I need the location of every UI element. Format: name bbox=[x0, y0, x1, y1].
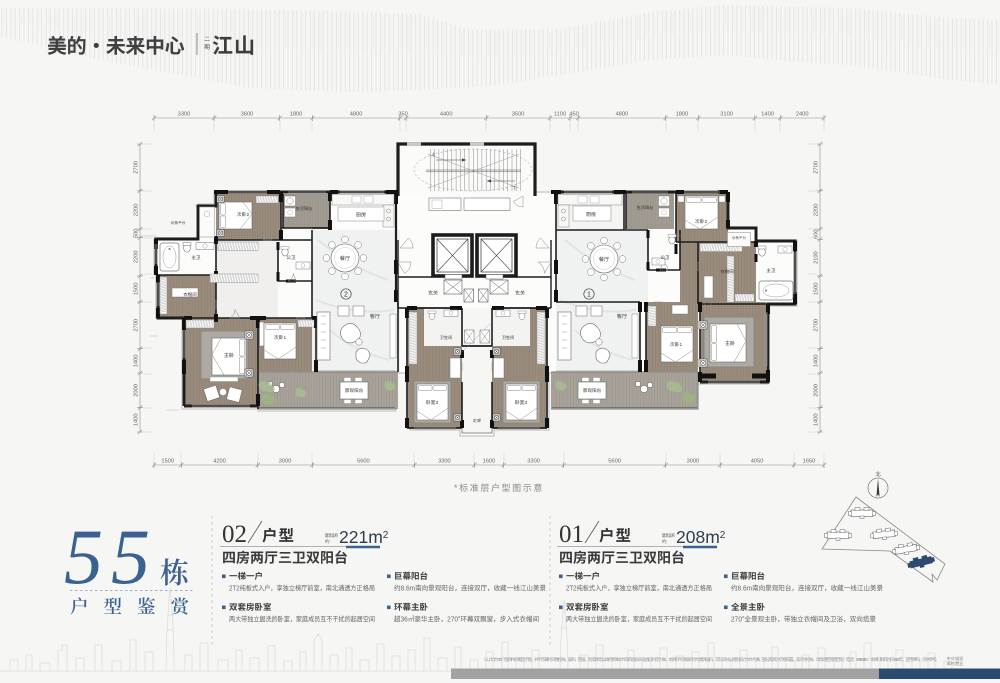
svg-text:1400: 1400 bbox=[814, 355, 820, 368]
svg-text:1800: 1800 bbox=[676, 112, 689, 118]
svg-text:美的置业: 美的置业 bbox=[947, 660, 964, 667]
svg-text:2700: 2700 bbox=[134, 319, 140, 332]
svg-text:卫生间: 卫生间 bbox=[502, 335, 515, 341]
svg-text:走廊: 走廊 bbox=[473, 418, 481, 424]
svg-text:客厅: 客厅 bbox=[370, 313, 380, 320]
svg-text:约: 约 bbox=[325, 539, 330, 545]
svg-text:户型鉴赏: 户型鉴赏 bbox=[70, 593, 204, 619]
svg-text:3100: 3100 bbox=[720, 112, 733, 118]
svg-text:4200: 4200 bbox=[213, 459, 226, 465]
svg-text:1400: 1400 bbox=[134, 413, 140, 426]
svg-text:3300: 3300 bbox=[438, 459, 451, 465]
svg-text:2T2纯板式入户，享独立梯厅前室，南北通透方正格局: 2T2纯板式入户，享独立梯厅前室，南北通透方正格局 bbox=[229, 584, 375, 594]
svg-text:双套房卧室: 双套房卧室 bbox=[229, 601, 272, 613]
svg-text:厨房: 厨房 bbox=[356, 212, 366, 219]
svg-text:次卧1: 次卧1 bbox=[274, 334, 287, 341]
svg-text:次卧1: 次卧1 bbox=[670, 341, 683, 348]
svg-text:3300: 3300 bbox=[527, 459, 540, 465]
svg-text:5600: 5600 bbox=[357, 459, 370, 465]
svg-text:1: 1 bbox=[587, 292, 591, 299]
svg-text:公卫: 公卫 bbox=[286, 255, 296, 261]
svg-text:1800: 1800 bbox=[290, 112, 303, 118]
svg-text:两大带独立盥洗的卧室，家庭成员互不干扰的起居空间: 两大带独立盥洗的卧室，家庭成员互不干扰的起居空间 bbox=[566, 615, 712, 625]
svg-text:2200: 2200 bbox=[814, 204, 820, 217]
svg-text:2200: 2200 bbox=[134, 250, 140, 263]
svg-text:景观阳台: 景观阳台 bbox=[345, 388, 364, 394]
svg-text:2400: 2400 bbox=[796, 112, 809, 118]
svg-text:卫生间: 卫生间 bbox=[440, 335, 453, 341]
svg-text:3300: 3300 bbox=[178, 112, 191, 118]
svg-text:1500: 1500 bbox=[161, 459, 174, 465]
svg-text:次卧2: 次卧2 bbox=[695, 218, 708, 225]
svg-text:环幕主卧: 环幕主卧 bbox=[394, 601, 429, 613]
svg-text:2700: 2700 bbox=[134, 161, 140, 174]
svg-text:450: 450 bbox=[569, 112, 579, 118]
svg-text:1400: 1400 bbox=[134, 355, 140, 368]
svg-text:1400: 1400 bbox=[761, 112, 774, 118]
svg-text:3000: 3000 bbox=[279, 459, 292, 465]
svg-text:2: 2 bbox=[344, 292, 348, 299]
svg-text:2000: 2000 bbox=[134, 384, 140, 397]
svg-text:4050: 4050 bbox=[751, 459, 764, 465]
svg-text:1500: 1500 bbox=[814, 283, 820, 296]
svg-text:景观阳台: 景观阳台 bbox=[583, 388, 602, 394]
svg-text:2100: 2100 bbox=[814, 251, 820, 264]
svg-text:1650: 1650 bbox=[803, 459, 816, 465]
svg-text:一梯一户: 一梯一户 bbox=[229, 570, 263, 582]
svg-text:02: 02 bbox=[222, 521, 247, 548]
svg-text:2200: 2200 bbox=[134, 204, 140, 217]
svg-text:玄关: 玄关 bbox=[428, 290, 438, 297]
svg-text:1500: 1500 bbox=[134, 283, 140, 296]
svg-text:江山: 江山 bbox=[212, 30, 256, 60]
svg-text:四房两厅三卫双阳台: 四房两厅三卫双阳台 bbox=[222, 548, 348, 568]
svg-text:主卫: 主卫 bbox=[191, 255, 201, 261]
svg-text:客厅: 客厅 bbox=[617, 313, 627, 320]
svg-text:公卫: 公卫 bbox=[660, 255, 670, 261]
svg-text:2700: 2700 bbox=[814, 161, 820, 174]
svg-text:玄关: 玄关 bbox=[515, 290, 525, 297]
svg-text:以上均为本户型结构的概念示意，并不作最终交楼标准，面积、管道: 以上均为本户型结构的概念示意，并不作最终交楼标准，面积、管道、别墙体等以政府批准… bbox=[484, 656, 940, 663]
svg-text:约: 约 bbox=[662, 539, 667, 545]
svg-text:全景主卧: 全景主卧 bbox=[731, 601, 766, 613]
svg-text:下: 下 bbox=[512, 186, 517, 192]
svg-text:5600: 5600 bbox=[608, 459, 621, 465]
svg-text:2000: 2000 bbox=[814, 384, 820, 397]
svg-text:四房两厅三卫双阳台: 四房两厅三卫双阳台 bbox=[559, 548, 685, 568]
svg-text:4800: 4800 bbox=[350, 112, 363, 118]
svg-text:500: 500 bbox=[134, 229, 140, 239]
svg-text:生活阳台: 生活阳台 bbox=[637, 205, 654, 211]
svg-text:350: 350 bbox=[398, 112, 408, 118]
svg-text:卧室3: 卧室3 bbox=[515, 399, 528, 406]
svg-text:上: 上 bbox=[431, 152, 436, 158]
svg-text:超36㎡豪华主卧，270°环幕双飘窗，步入式衣帽间: 超36㎡豪华主卧，270°环幕双飘窗，步入式衣帽间 bbox=[394, 615, 539, 625]
svg-text:1400: 1400 bbox=[814, 413, 820, 426]
svg-text:4800: 4800 bbox=[616, 112, 629, 118]
svg-text:1600: 1600 bbox=[483, 459, 496, 465]
svg-text:设备平台: 设备平台 bbox=[170, 220, 185, 226]
svg-text:约8.6m南向景观阳台，连接双厅，收藏一线江山美景: 约8.6m南向景观阳台，连接双厅，收藏一线江山美景 bbox=[394, 584, 546, 594]
svg-text:221m2: 221m2 bbox=[339, 527, 389, 547]
svg-text:2700: 2700 bbox=[814, 319, 820, 332]
svg-text:双套房卧室: 双套房卧室 bbox=[566, 601, 609, 613]
svg-text:主卧: 主卧 bbox=[725, 340, 735, 347]
svg-text:主卧: 主卧 bbox=[224, 352, 234, 359]
svg-text:衣帽间: 衣帽间 bbox=[183, 292, 197, 298]
svg-text:3000: 3000 bbox=[687, 459, 700, 465]
svg-text:期: 期 bbox=[204, 42, 210, 51]
svg-text:卧室3: 卧室3 bbox=[426, 399, 439, 406]
svg-text:美的·未来中心: 美的·未来中心 bbox=[47, 30, 185, 59]
svg-text:衣帽间: 衣帽间 bbox=[720, 269, 734, 275]
svg-text:3500: 3500 bbox=[512, 112, 525, 118]
svg-text:户型: 户型 bbox=[262, 524, 295, 546]
svg-text:次卧2: 次卧2 bbox=[237, 211, 250, 218]
svg-text:01: 01 bbox=[559, 521, 584, 548]
svg-text:一梯一户: 一梯一户 bbox=[566, 570, 600, 582]
svg-text:600: 600 bbox=[814, 229, 820, 239]
svg-text:*标准层户型图示意: *标准层户型图示意 bbox=[454, 481, 544, 494]
svg-text:208m2: 208m2 bbox=[676, 527, 726, 547]
svg-text:生活阳台: 生活阳台 bbox=[296, 206, 313, 212]
svg-text:巨幕阳台: 巨幕阳台 bbox=[731, 570, 765, 582]
svg-text:户型: 户型 bbox=[599, 524, 632, 546]
svg-text:餐厅: 餐厅 bbox=[340, 255, 350, 262]
svg-text:2T2纯板式入户，享独立梯厅前室，南北通透方正格局: 2T2纯板式入户，享独立梯厅前室，南北通透方正格局 bbox=[566, 584, 712, 594]
svg-text:两大带独立盥洗的卧室，家庭成员互不干扰的起居空间: 两大带独立盥洗的卧室，家庭成员互不干扰的起居空间 bbox=[229, 615, 375, 625]
svg-text:1100: 1100 bbox=[554, 112, 566, 118]
svg-text:餐厅: 餐厅 bbox=[599, 256, 609, 263]
svg-text:主卫: 主卫 bbox=[766, 268, 776, 274]
svg-text:厨房: 厨房 bbox=[586, 211, 596, 218]
svg-text:270°全景观主卧，带独立衣帽间及卫浴，双向揽景: 270°全景观主卧，带独立衣帽间及卫浴，双向揽景 bbox=[731, 615, 876, 625]
svg-text:3600: 3600 bbox=[241, 112, 254, 118]
svg-text:设备平台: 设备平台 bbox=[732, 236, 746, 241]
svg-text:55: 55 bbox=[64, 513, 158, 600]
svg-text:约8.6m南向景观阳台，连接双厅，收藏一线江山美景: 约8.6m南向景观阳台，连接双厅，收藏一线江山美景 bbox=[731, 584, 883, 594]
svg-text:巨幕阳台: 巨幕阳台 bbox=[394, 570, 428, 582]
svg-text:4400: 4400 bbox=[440, 112, 453, 118]
svg-text:北: 北 bbox=[875, 470, 881, 478]
svg-text:栋: 栋 bbox=[160, 551, 189, 592]
